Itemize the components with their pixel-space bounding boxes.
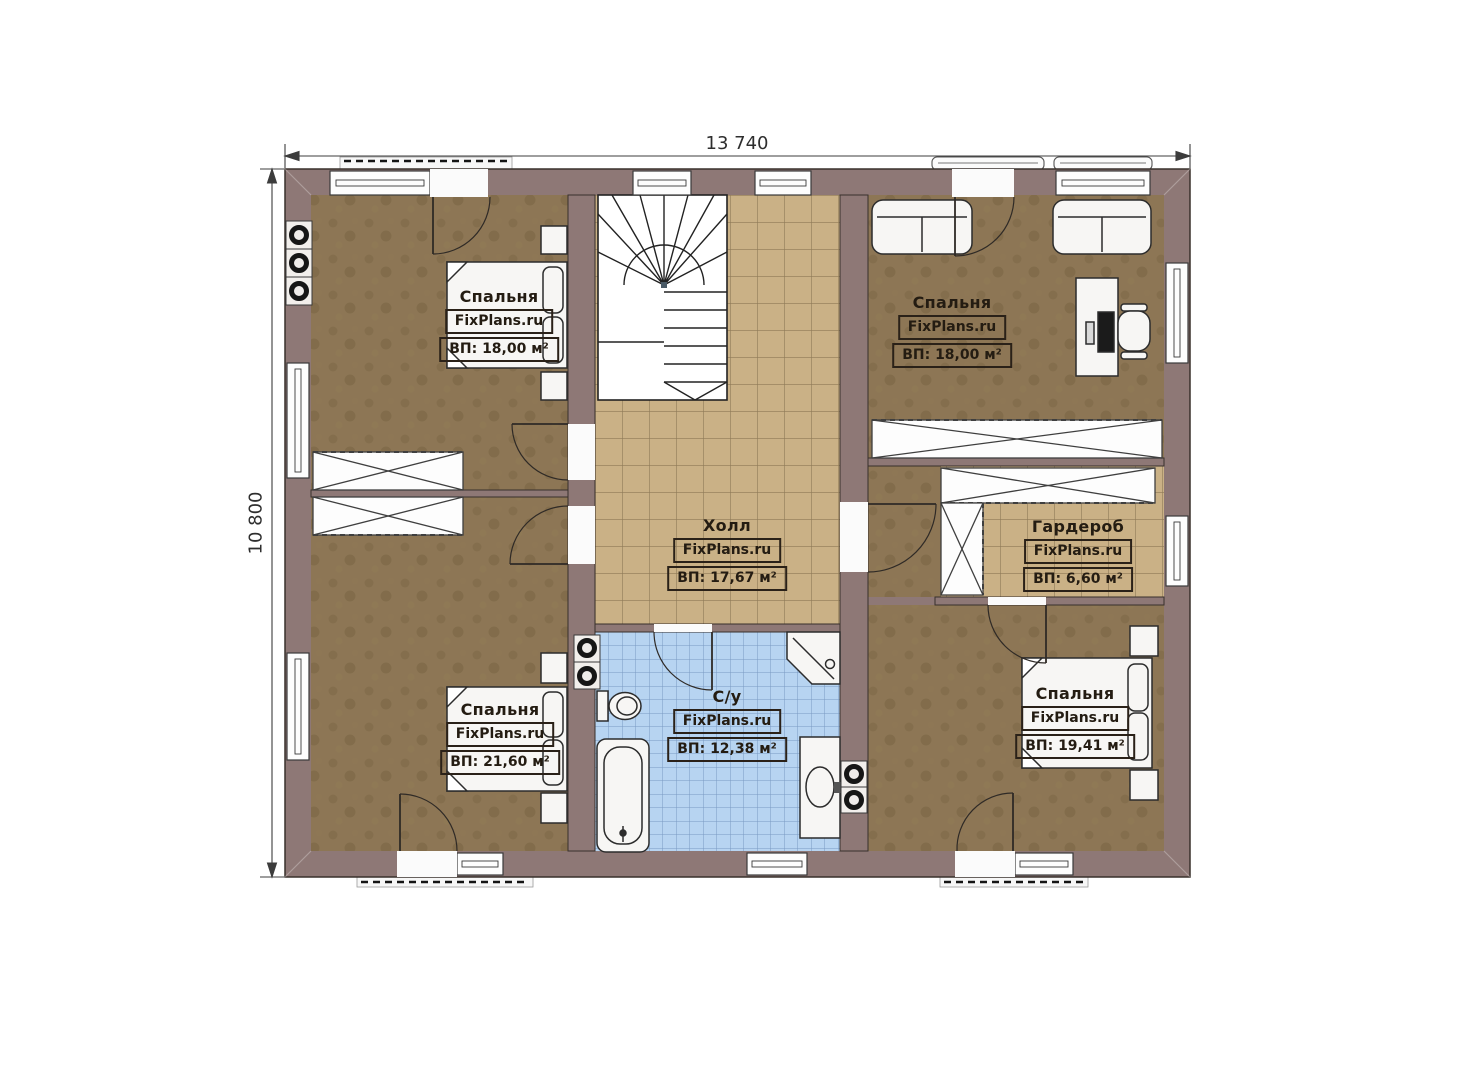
room-label-bathroom: С/у FixPlans.ru ВП: 12,38 м² xyxy=(667,687,787,762)
dimension-height-label: 10 800 xyxy=(246,492,267,555)
room-area: ВП: 12,38 м² xyxy=(667,737,787,762)
balcony-railing-bottom-left xyxy=(357,877,533,887)
watermark: FixPlans.ru xyxy=(1024,539,1132,564)
vent-stack-bathroom-right xyxy=(841,761,867,813)
room-area: ВП: 6,60 м² xyxy=(1023,567,1133,592)
cabinet-top-left-room xyxy=(313,452,463,490)
sink-vanity xyxy=(800,737,841,838)
window-left-lower xyxy=(287,653,309,760)
window-right-upper xyxy=(1166,263,1188,363)
room-label-bedroom-bottom-right: Спальня FixPlans.ru ВП: 19,41 м² xyxy=(1015,684,1135,759)
room-name: Холл xyxy=(703,516,751,535)
window-bottom-left-room xyxy=(457,853,503,875)
window-hall-1 xyxy=(633,171,691,195)
watermark: FixPlans.ru xyxy=(445,309,553,334)
room-area: ВП: 19,41 м² xyxy=(1015,734,1135,759)
sofa-right xyxy=(1053,200,1151,254)
keyboard xyxy=(1086,322,1094,344)
watermark: FixPlans.ru xyxy=(673,538,781,563)
room-area: ВП: 18,00 м² xyxy=(892,343,1012,368)
window-bottom-bathroom xyxy=(747,853,807,875)
window-top-right-room xyxy=(1056,171,1150,195)
sofa-left xyxy=(872,200,972,254)
watermark: FixPlans.ru xyxy=(446,722,554,747)
nightstand xyxy=(541,653,567,683)
window-right-wardrobe xyxy=(1166,516,1188,586)
room-label-bedroom-top-right: Спальня FixPlans.ru ВП: 18,00 м² xyxy=(892,293,1012,368)
balcony-railing-bottom-right xyxy=(940,877,1088,887)
room-area: ВП: 17,67 м² xyxy=(667,566,787,591)
cabinet-bottom-left-room xyxy=(313,497,463,535)
room-label-bedroom-top-left: Спальня FixPlans.ru ВП: 18,00 м² xyxy=(439,287,559,362)
room-label-wardrobe: Гардероб FixPlans.ru ВП: 6,60 м² xyxy=(1023,517,1133,592)
page-background: Спальня FixPlans.ru ВП: 18,00 м² Спальня… xyxy=(0,0,1473,1080)
window-left-upper xyxy=(287,363,309,478)
vent-stack-left xyxy=(286,221,312,305)
faucet xyxy=(834,782,841,793)
cabinet-top-right-room xyxy=(872,420,1162,458)
vent-stack-bathroom-left xyxy=(574,635,600,689)
dimension-width-label: 13 740 xyxy=(706,133,769,154)
bathtub xyxy=(597,739,649,852)
monitor xyxy=(1098,312,1114,352)
nightstand xyxy=(1130,626,1158,656)
room-name: Спальня xyxy=(461,700,540,719)
cabinet-wardrobe-horizontal xyxy=(941,468,1155,503)
window-hall-2 xyxy=(755,171,811,195)
room-name: С/у xyxy=(713,687,742,706)
room-label-hall: Холл FixPlans.ru ВП: 17,67 м² xyxy=(667,516,787,591)
watermark: FixPlans.ru xyxy=(1021,706,1129,731)
cabinet-wardrobe-vertical xyxy=(941,503,983,595)
room-area: ВП: 18,00 м² xyxy=(439,337,559,362)
floor-bedroom-bottom-left xyxy=(311,497,568,851)
room-name: Гардероб xyxy=(1032,517,1124,536)
watermark: FixPlans.ru xyxy=(673,709,781,734)
room-label-bedroom-bottom-left: Спальня FixPlans.ru ВП: 21,60 м² xyxy=(440,700,560,775)
balcony-railing-top-left xyxy=(340,157,512,169)
nightstand xyxy=(1130,770,1158,800)
nightstand xyxy=(541,226,567,254)
nightstand xyxy=(541,372,567,400)
room-area: ВП: 21,60 м² xyxy=(440,750,560,775)
nightstand xyxy=(541,793,567,823)
window-top-left-room xyxy=(330,171,430,195)
room-name: Спальня xyxy=(460,287,539,306)
window-bottom-right-room xyxy=(1015,853,1073,875)
balcony-railing-top-right xyxy=(932,157,1152,170)
desk xyxy=(1076,278,1118,376)
staircase xyxy=(598,195,727,400)
room-name: Спальня xyxy=(1036,684,1115,703)
room-name: Спальня xyxy=(913,293,992,312)
watermark: FixPlans.ru xyxy=(898,315,1006,340)
toilet xyxy=(597,691,641,721)
